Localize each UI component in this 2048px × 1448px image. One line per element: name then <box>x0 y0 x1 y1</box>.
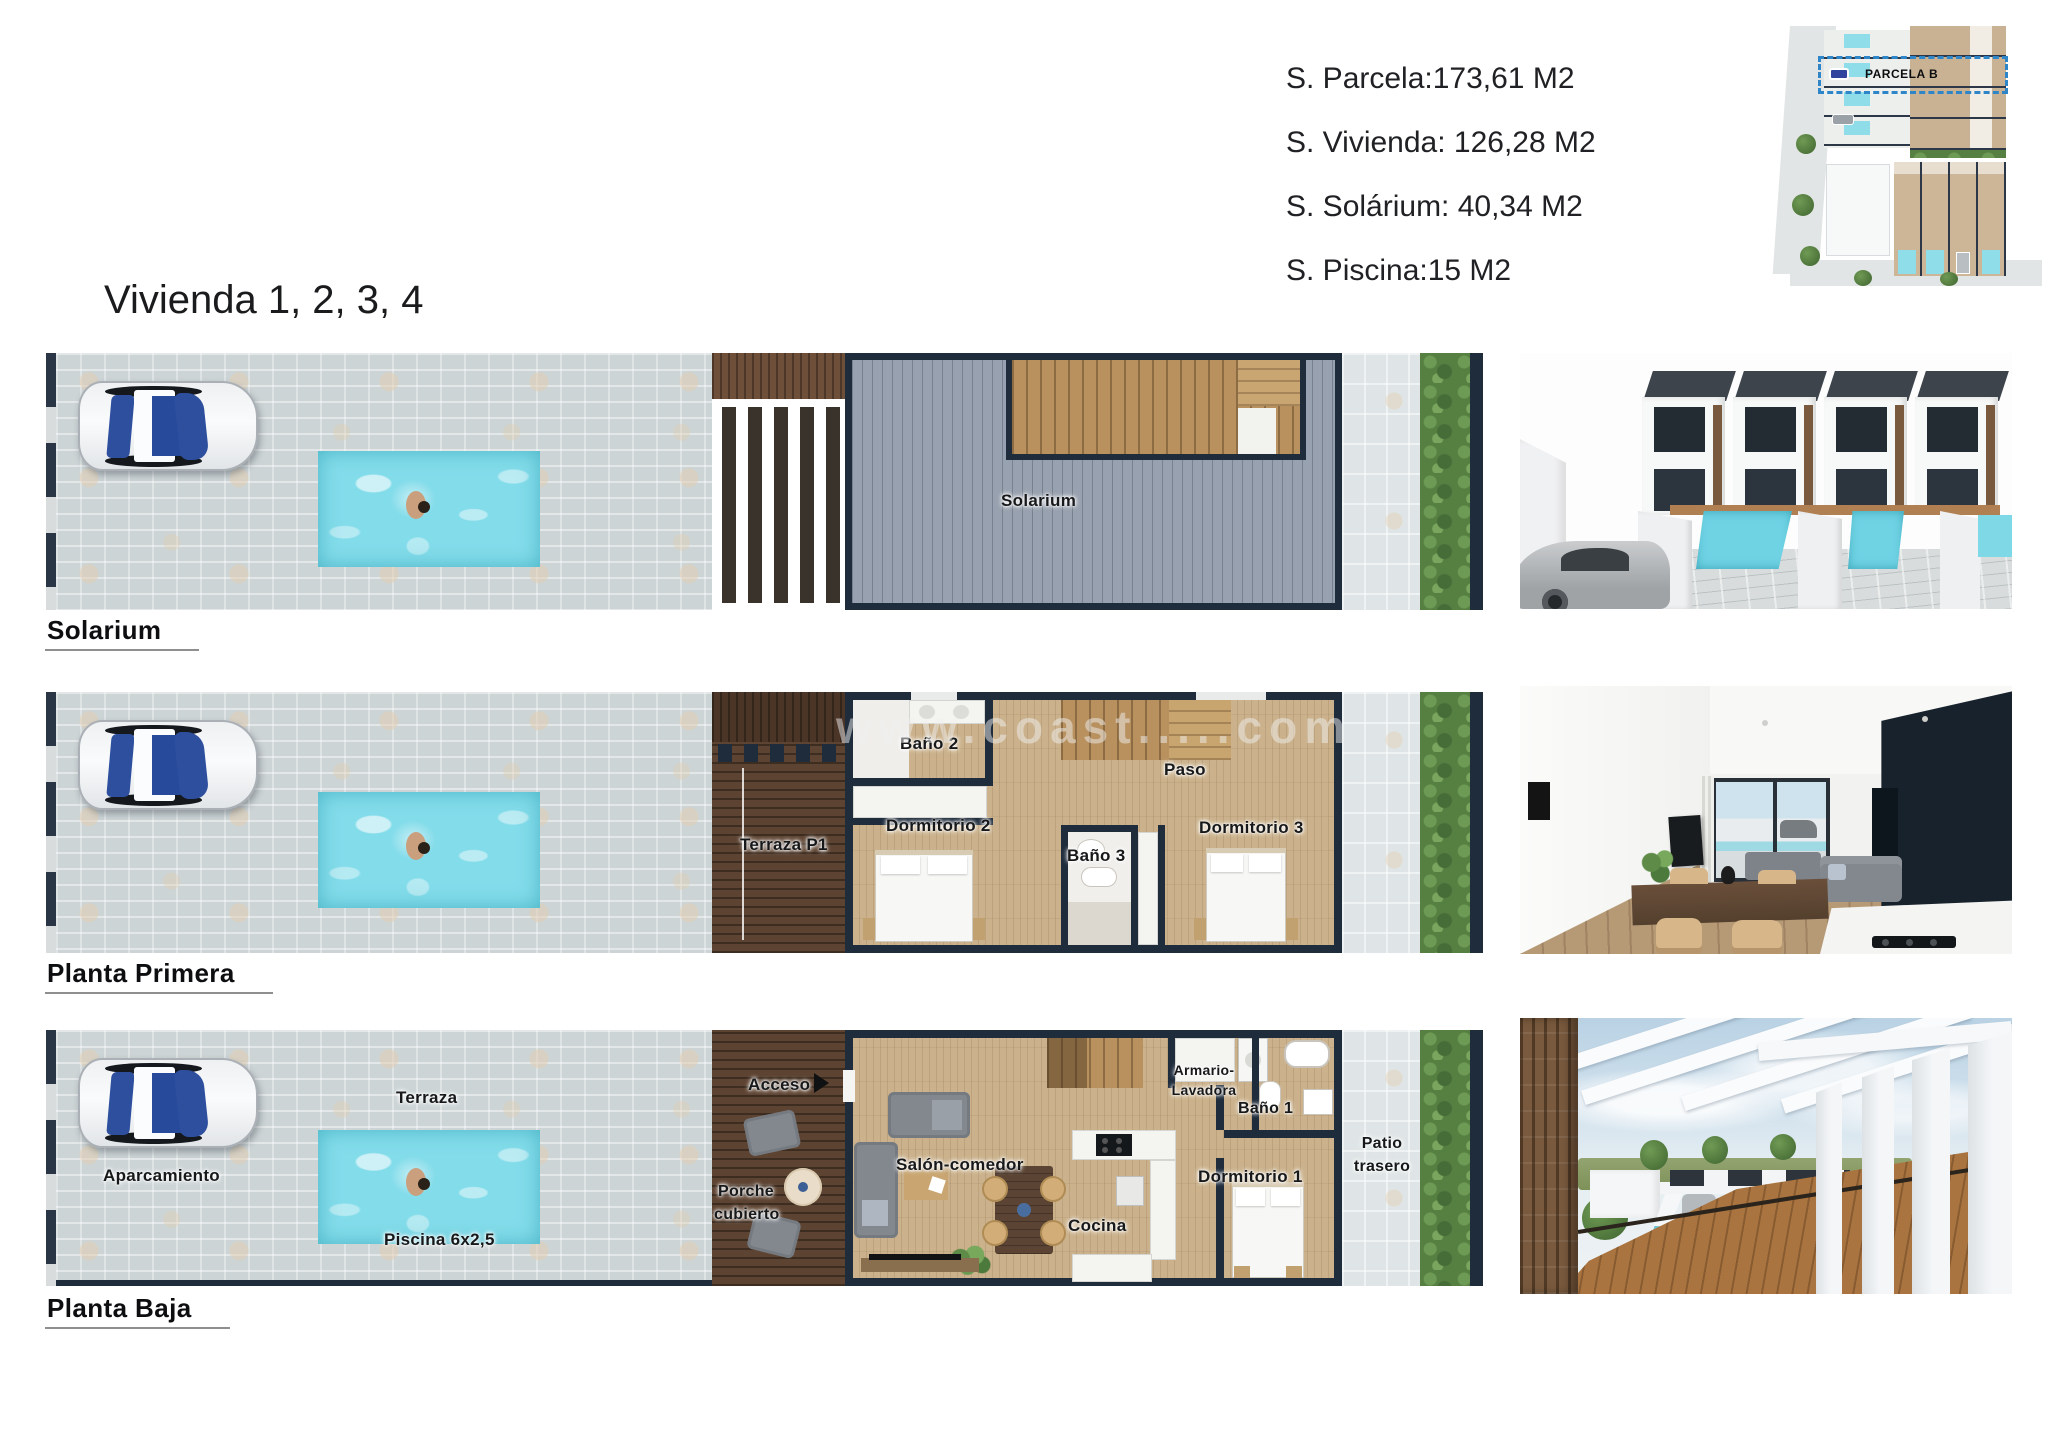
paper <box>928 1176 946 1194</box>
tree <box>1770 1134 1796 1160</box>
page-title: Vivienda 1, 2, 3, 4 <box>104 278 424 323</box>
dining-chair <box>1040 1176 1066 1202</box>
mini-pool <box>1844 34 1870 48</box>
wall <box>1224 1130 1342 1138</box>
hob <box>1096 1134 1132 1156</box>
room-label-patio-trasero: Patio trasero <box>1348 1132 1416 1178</box>
armario-line1: Armario- <box>1166 1060 1242 1080</box>
car-3d <box>1520 541 1670 609</box>
floor-label-planta-baja: Planta Baja <box>45 1293 230 1329</box>
room-label-terraza-p1: Terraza P1 <box>740 835 828 855</box>
room-label-dormitorio2: Dormitorio 2 <box>886 816 991 836</box>
tree <box>1792 194 1814 216</box>
tree <box>1702 1136 1728 1164</box>
hedge-row <box>1910 150 2006 158</box>
chair <box>1656 918 1702 954</box>
bench <box>1234 1266 1250 1278</box>
nightstand <box>863 918 875 940</box>
ceiling-spot <box>1762 720 1768 726</box>
stairs <box>1006 360 1306 460</box>
chair-back <box>1670 868 1708 884</box>
bed <box>1232 1182 1304 1278</box>
stair-landing <box>1238 360 1300 406</box>
wood-cladding <box>1895 405 1903 506</box>
mini-pool <box>1898 250 1916 274</box>
pergola-zone <box>712 353 845 610</box>
porche-line2: cubierto <box>714 1203 778 1226</box>
pillow <box>928 856 967 874</box>
room-label-dormitorio3: Dormitorio 3 <box>1199 818 1304 838</box>
control-panel <box>1528 782 1550 820</box>
kitchen-counter <box>1072 1254 1152 1282</box>
sofa <box>854 1142 898 1238</box>
floor-plan-planta-baja: Aparcamiento Terraza Piscina 6x2,5 Acces… <box>46 1030 1483 1286</box>
wall <box>845 1030 853 1286</box>
wardrobe <box>853 786 987 818</box>
wood-cladding <box>1804 405 1812 506</box>
site-plan-thumbnail: PARCELA B <box>1790 14 2042 286</box>
bench <box>1286 1266 1302 1278</box>
bathtub <box>1284 1040 1330 1068</box>
pillar <box>1968 1032 2012 1294</box>
hedge <box>1420 692 1470 953</box>
room-label-aparcamiento: Aparcamiento <box>103 1166 220 1186</box>
hob-3d <box>1872 936 1956 948</box>
house-facade <box>1915 397 1998 515</box>
wall <box>1061 825 1138 832</box>
room-label-piscina: Piscina 6x2,5 <box>384 1230 495 1250</box>
hob-ring <box>1102 1147 1108 1153</box>
building-white <box>1826 164 1890 256</box>
pool <box>1978 515 2012 557</box>
slat <box>722 407 736 603</box>
bed <box>1206 848 1286 942</box>
rear-paving <box>1342 353 1483 610</box>
window <box>1927 407 1978 452</box>
bed <box>875 850 973 942</box>
wood-lintel <box>712 353 845 399</box>
coffee-table <box>904 1172 948 1200</box>
floor-plan-solarium: Solarium <box>46 353 1483 610</box>
headboard <box>1206 848 1286 853</box>
window <box>1654 407 1705 452</box>
tv-bench <box>861 1258 979 1272</box>
watermark: www.coast.....com <box>836 700 1352 754</box>
pool <box>1848 511 1904 569</box>
mini-pool <box>1926 250 1944 274</box>
street-edge <box>46 692 56 953</box>
tree <box>1854 270 1872 286</box>
room-label-salon: Salón-comedor <box>896 1155 1024 1175</box>
vase <box>1721 866 1736 884</box>
street-edge <box>46 353 56 610</box>
floor-label-planta-primera: Planta Primera <box>45 958 273 994</box>
room-label-cocina: Cocina <box>1068 1216 1126 1236</box>
railing-post <box>744 744 758 762</box>
stair-opening <box>1238 408 1276 454</box>
swimming-pool <box>318 451 540 567</box>
house-row <box>1638 397 2002 515</box>
pillar <box>1816 1082 1842 1294</box>
hedge <box>1420 1030 1470 1286</box>
mini-car <box>1956 252 1970 274</box>
sofa <box>888 1092 970 1138</box>
mini-pool <box>1844 92 1870 106</box>
hedge <box>1420 353 1470 610</box>
tv <box>869 1254 961 1260</box>
room-label-paso: Paso <box>1164 760 1206 780</box>
pillar <box>1862 1066 1894 1294</box>
garden-wall <box>1798 511 1842 609</box>
wall <box>1158 825 1165 953</box>
tree <box>1800 246 1820 266</box>
dining-chair <box>982 1220 1008 1246</box>
kitchen-counter <box>1072 1130 1176 1160</box>
wall <box>845 945 1342 953</box>
car-through-glass <box>1780 820 1817 837</box>
front-wall <box>56 1280 712 1286</box>
nightstand <box>1194 918 1206 940</box>
slat <box>800 407 814 603</box>
garden-wall <box>1940 511 1980 609</box>
car-top-view <box>78 381 258 471</box>
hob-ring <box>1930 939 1937 946</box>
toilet <box>1082 868 1116 886</box>
street-edge <box>46 1030 56 1286</box>
swimming-pool <box>318 792 540 908</box>
house-facade <box>1642 397 1725 515</box>
fridge <box>1116 1176 1144 1206</box>
sink <box>1304 1090 1332 1114</box>
hob-ring <box>1906 939 1913 946</box>
plan-sheet: { "title": "Vivienda 1, 2, 3, 4", "heade… <box>0 0 2048 1448</box>
side-table <box>784 1168 822 1206</box>
cushion <box>932 1100 962 1130</box>
car-wheel <box>1542 589 1568 609</box>
boundary-wall <box>1470 692 1483 953</box>
hob-ring <box>1116 1147 1122 1153</box>
wardrobe <box>1138 832 1158 945</box>
wood-lintel <box>712 692 845 742</box>
hob-ring <box>1882 939 1889 946</box>
shower <box>1068 902 1131 945</box>
pillow <box>1236 1188 1265 1206</box>
hob-ring <box>1116 1138 1122 1144</box>
pillow <box>1211 854 1243 872</box>
patio-line1: Patio <box>1348 1132 1416 1155</box>
entry-door-gap <box>843 1070 855 1102</box>
nightstand <box>1286 918 1298 940</box>
room-label-acceso: Acceso <box>748 1075 810 1095</box>
rear-paving <box>1342 692 1483 953</box>
house-facade <box>1824 397 1907 515</box>
render-terrace-view <box>1520 1018 2012 1294</box>
sofa <box>1820 856 1902 902</box>
stairs <box>1047 1038 1143 1088</box>
swimmer-head <box>418 501 430 513</box>
parcel-b-label: PARCELA B <box>1865 67 1938 81</box>
room-label-porche-cubierto: Porche cubierto <box>714 1180 778 1226</box>
parcel-b-outline: PARCELA B <box>1818 56 2008 94</box>
tree <box>1640 1140 1668 1170</box>
wall <box>853 778 993 786</box>
wall <box>845 1030 1342 1038</box>
stat-vivienda: S. Vivienda: 126,28 M2 <box>1286 126 1596 160</box>
window-gap <box>911 692 957 700</box>
dining-chair <box>982 1176 1008 1202</box>
railing-post <box>822 744 836 762</box>
ceiling-spot <box>1922 716 1928 722</box>
stat-piscina: S. Piscina:15 M2 <box>1286 254 1511 288</box>
paver-terrace <box>56 353 712 610</box>
pillow <box>1249 854 1281 872</box>
headboard <box>875 850 973 855</box>
mini-pool <box>1982 250 2000 274</box>
mini-car <box>1829 68 1849 80</box>
boundary-wall <box>1470 1030 1483 1286</box>
room-label-bano1: Baño 1 <box>1238 1100 1293 1118</box>
white-walls <box>1590 1170 1660 1218</box>
window <box>1745 407 1796 452</box>
pillow <box>881 856 920 874</box>
porche-line1: Porche <box>714 1180 778 1203</box>
wall <box>1334 1030 1342 1286</box>
railing-post <box>770 744 784 762</box>
chair-back <box>1758 870 1796 884</box>
render-interior-living <box>1520 686 2012 954</box>
window <box>1836 407 1887 452</box>
boundary-wall <box>1470 353 1483 610</box>
stat-solarium: S. Solárium: 40,34 M2 <box>1286 190 1583 224</box>
chair <box>1732 920 1782 954</box>
room-label-solarium: Solarium <box>1001 491 1076 511</box>
pool <box>1696 511 1792 569</box>
house-facade <box>1733 397 1816 515</box>
wall <box>1061 825 1068 953</box>
tree <box>1796 134 1816 154</box>
armario-line2: Lavadora <box>1166 1080 1242 1100</box>
railing-post <box>718 744 732 762</box>
tree <box>1940 272 1958 286</box>
pillow <box>1828 864 1846 880</box>
room-label-bano3: Baño 3 <box>1067 846 1125 866</box>
stats-block: S. Parcela:173,61 M2 S. Vivienda: 126,28… <box>1286 56 1706 296</box>
swimmer-head <box>418 1178 430 1190</box>
room-label-armario-lavadora: Armario- Lavadora <box>1166 1060 1242 1101</box>
wood-cladding <box>1713 405 1721 506</box>
render-exterior-street-view <box>1520 353 2012 609</box>
stair-shadow <box>1047 1038 1087 1088</box>
room-label-terraza: Terraza <box>396 1088 457 1108</box>
hob-ring <box>1102 1138 1108 1144</box>
nightstand <box>973 918 985 940</box>
units-lower <box>1894 162 2006 276</box>
swimmer-head <box>418 842 430 854</box>
pillar <box>1912 1048 1950 1294</box>
slat <box>826 407 840 603</box>
mini-car <box>1832 114 1854 125</box>
dining-chair <box>1040 1220 1066 1246</box>
floor-plan-planta-primera: www.coast.....com Baño 2 Paso Dormitorio… <box>46 692 1483 953</box>
patio-line2: trasero <box>1348 1155 1416 1178</box>
cushion <box>862 1200 888 1226</box>
wood-cladding <box>1986 405 1994 506</box>
armchair <box>743 1109 802 1157</box>
room-label-dormitorio1: Dormitorio 1 <box>1198 1167 1303 1187</box>
car-top-view <box>78 1058 258 1148</box>
porch-deck <box>712 1030 845 1286</box>
wood-slat-wall <box>1520 1018 1578 1294</box>
paver-terrace <box>56 692 712 953</box>
wall <box>1131 825 1138 953</box>
railing-post <box>796 744 810 762</box>
car-top-view <box>78 720 258 810</box>
window-gap <box>1196 692 1266 700</box>
terraza-p1-deck <box>712 692 845 953</box>
solarium-deck <box>845 353 1342 610</box>
slat <box>774 407 788 603</box>
slat <box>748 407 762 603</box>
kitchen-counter <box>1150 1160 1176 1260</box>
floor-label-solarium: Solarium <box>45 615 199 651</box>
car-window <box>1561 548 1630 571</box>
swimming-pool <box>318 1130 540 1244</box>
pillow <box>1271 1188 1300 1206</box>
stat-parcela: S. Parcela:173,61 M2 <box>1286 62 1575 96</box>
acceso-arrow-icon <box>814 1073 829 1093</box>
table-deco <box>798 1182 808 1192</box>
table-deco <box>1017 1203 1031 1217</box>
